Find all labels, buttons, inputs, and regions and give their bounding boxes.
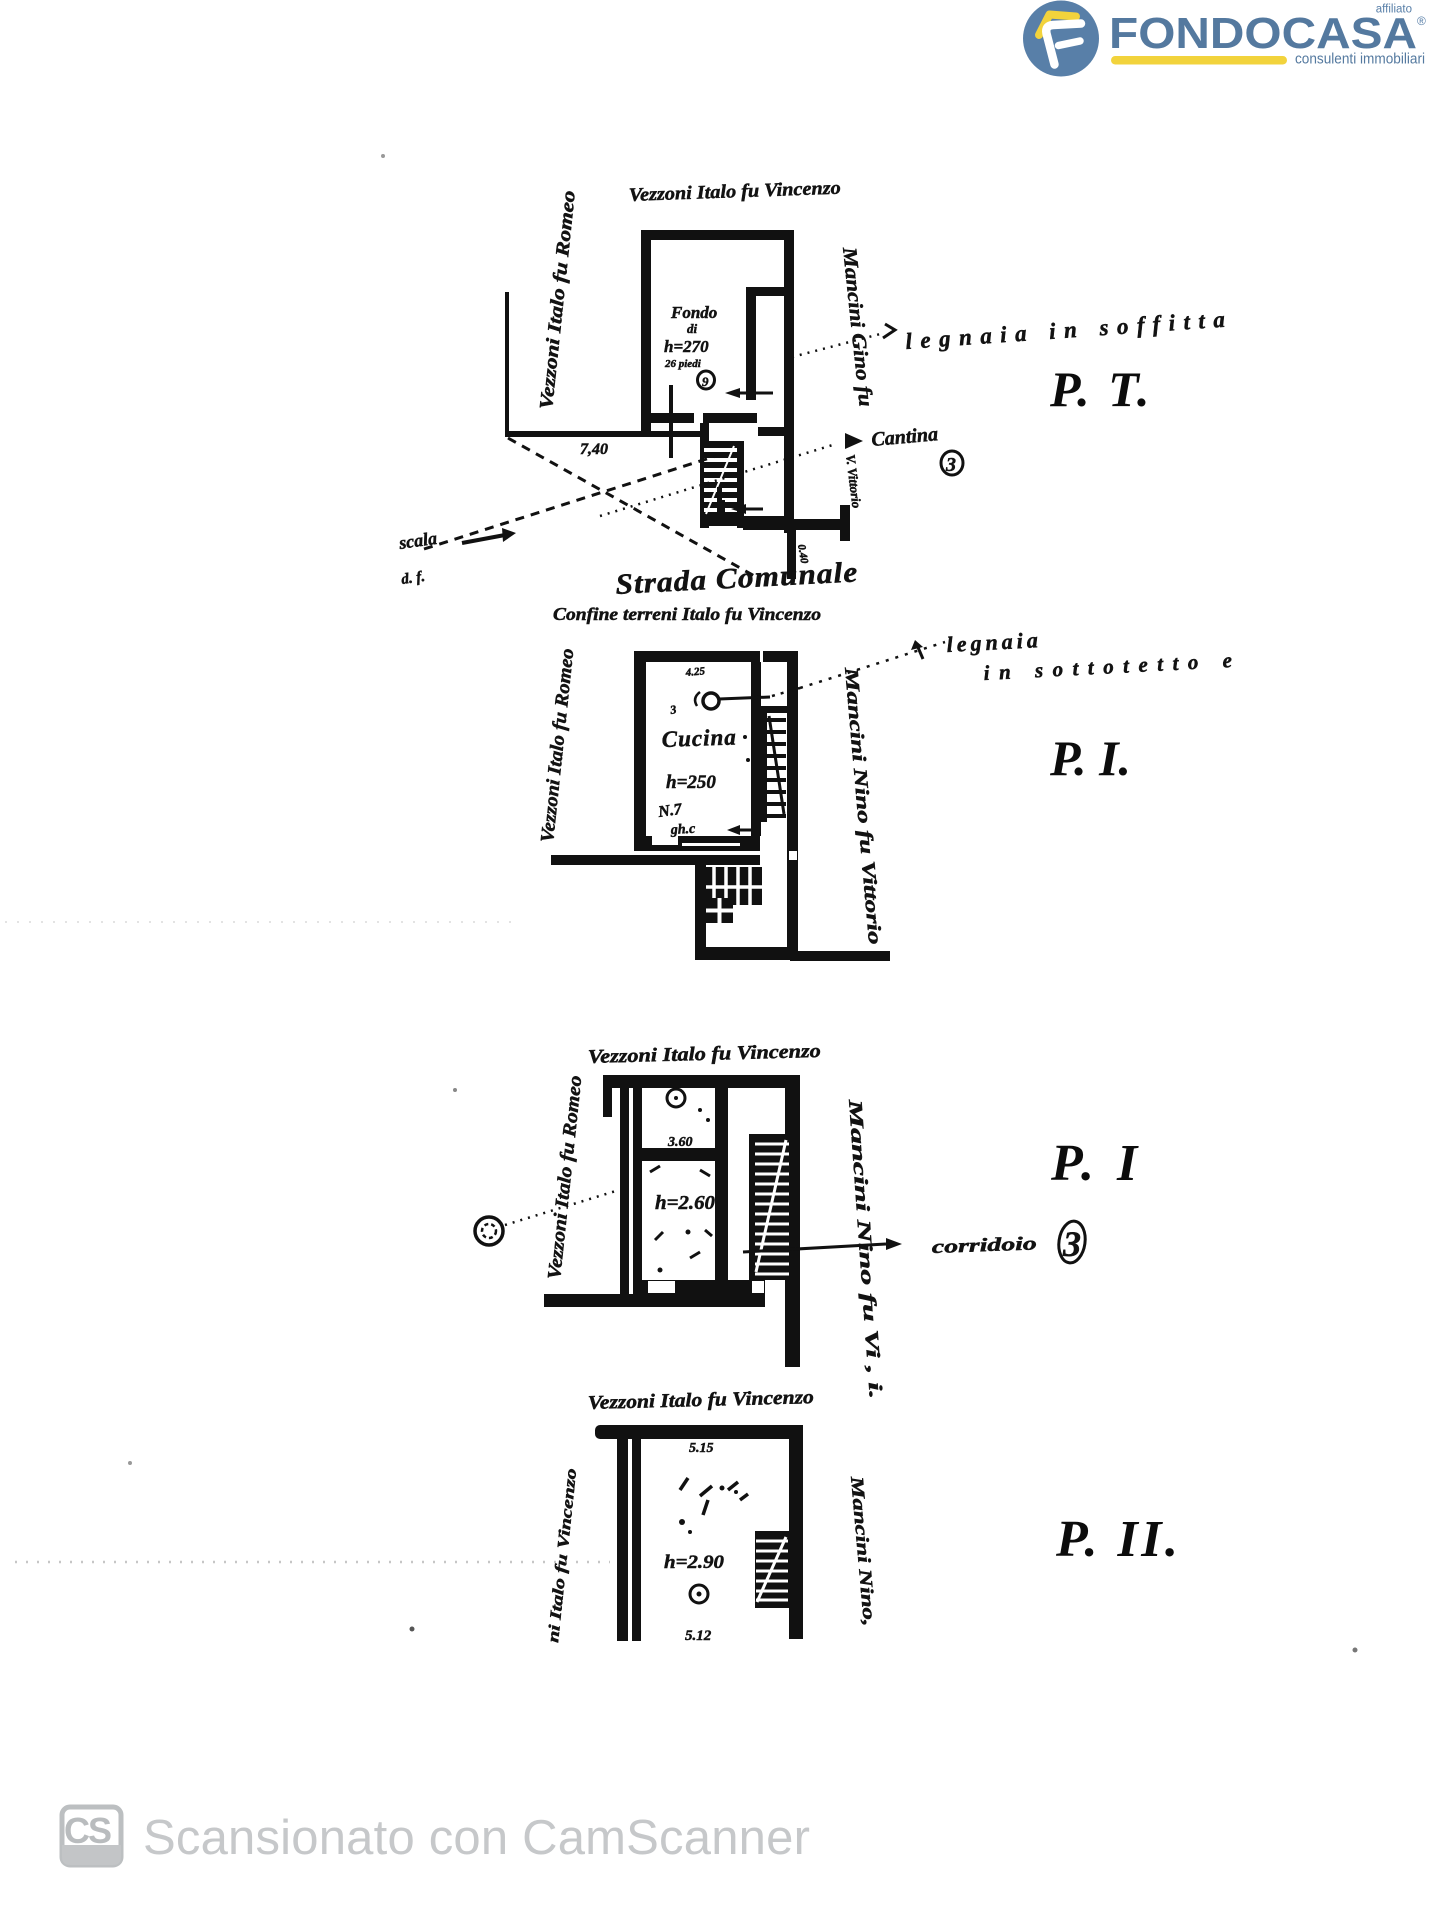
svg-text:3: 3 (1062, 1224, 1081, 1264)
svg-text:consulenti immobiliari: consulenti immobiliari (1295, 51, 1425, 68)
svg-text:9: 9 (702, 374, 709, 389)
svg-text:gh.c: gh.c (669, 822, 696, 838)
svg-text:h=250: h=250 (666, 772, 716, 793)
svg-text:P. I: P. I (1050, 1135, 1142, 1192)
svg-text:5.12: 5.12 (685, 1628, 712, 1644)
svg-text:3.60: 3.60 (667, 1135, 693, 1150)
svg-text:CS: CS (64, 1810, 111, 1851)
svg-text:5.15: 5.15 (689, 1441, 714, 1456)
svg-text:3: 3 (945, 454, 956, 476)
svg-text:legnaia: legnaia (946, 627, 1042, 657)
svg-text:h=2.90: h=2.90 (664, 1552, 725, 1573)
svg-text:N.7: N.7 (656, 801, 684, 821)
svg-text:Fondo: Fondo (670, 303, 717, 322)
svg-text:h=270: h=270 (664, 337, 709, 356)
svg-text:corridoio: corridoio (931, 1233, 1037, 1258)
svg-text:®: ® (1417, 14, 1426, 28)
svg-text:P. T.: P. T. (1049, 361, 1153, 417)
svg-text:h=2.60: h=2.60 (655, 1192, 715, 1214)
svg-text:Cucina: Cucina (661, 724, 737, 752)
svg-text:P. II.: P. II. (1055, 1511, 1182, 1568)
svg-text:4.25: 4.25 (684, 665, 706, 679)
svg-text:P. I.: P. I. (1049, 730, 1131, 786)
svg-text:Scansionato con CamScanner: Scansionato con CamScanner (143, 1811, 810, 1865)
svg-text:26 piedi: 26 piedi (664, 358, 702, 370)
svg-text:7,40: 7,40 (580, 441, 608, 458)
svg-text:di: di (687, 321, 698, 336)
svg-text:affiliato: affiliato (1376, 4, 1412, 16)
svg-text:d. f.: d. f. (400, 569, 426, 588)
svg-text:Confine terreni Italo fu Vince: Confine terreni Italo fu Vincenzo (553, 604, 821, 624)
